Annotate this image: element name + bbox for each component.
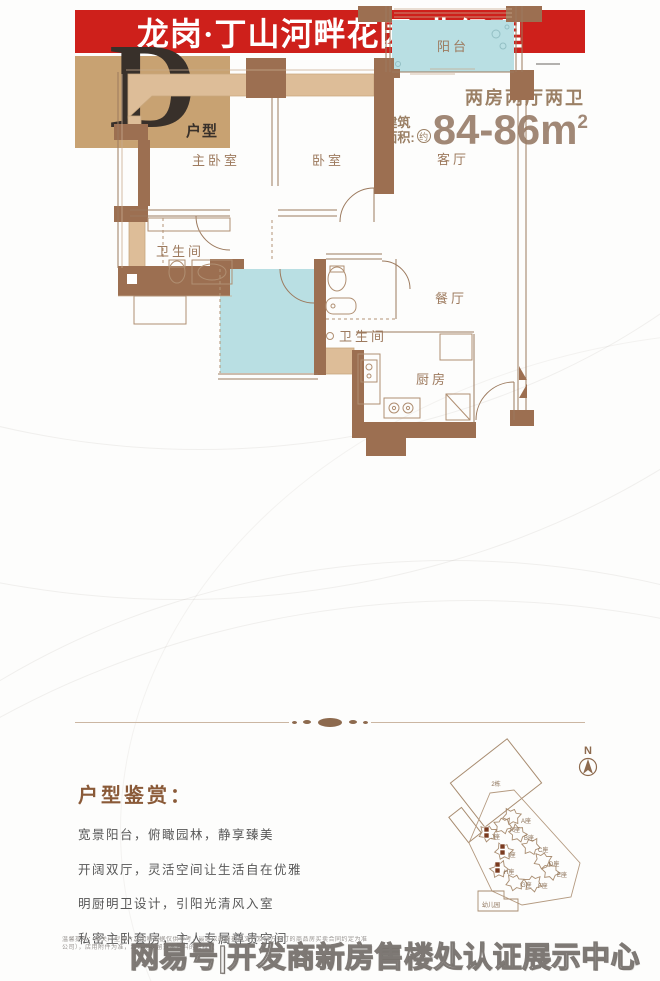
room-label-living-room: 客厅 xyxy=(437,152,469,167)
building-label-kindergarten: 幼儿园 xyxy=(482,901,500,909)
floor-plan: 阳台 主卧室 卧室 客厅 卫生间 卫生间 餐厅 厨房 xyxy=(0,0,660,470)
room-label-bathroom-1: 卫生间 xyxy=(156,244,204,259)
building-label-K: K座 xyxy=(510,826,520,834)
north-label: N xyxy=(584,745,592,757)
platform-watermark: 网易号|开发商新房售楼处认证展示中心 xyxy=(130,934,640,976)
room-label-master-bedroom: 主卧室 xyxy=(192,153,240,168)
feature-item: 开阔双厅，灵活空间让生活自在优雅 xyxy=(78,859,408,878)
room-label-dining-room: 餐厅 xyxy=(435,291,467,306)
room-label-bedroom: 卧室 xyxy=(312,153,344,168)
building-label-C: C座 xyxy=(538,846,548,854)
building-label-D: D座 xyxy=(549,860,559,868)
building-label-G: G座 xyxy=(521,881,532,889)
building-label-E: E座 xyxy=(557,871,567,879)
site-plan: N 2栋 xyxy=(420,733,655,943)
section-divider xyxy=(75,716,585,728)
features-heading: 户型鉴赏： xyxy=(78,779,408,808)
feature-item: 明厨明卫设计，引阳光清风入室 xyxy=(78,893,408,912)
poster-page: 龙岗·丁山河畔花园·裴经理 D 户型 两房两厅两卫 建筑 面积: 约 84-86… xyxy=(0,0,660,981)
building-label-B: B座 xyxy=(524,834,534,842)
building-label-I: I座 xyxy=(508,851,516,859)
compass-needle xyxy=(583,759,593,774)
feature-item: 宽景阳台，俯瞰园林，静享臻美 xyxy=(78,824,408,843)
divider-ornament xyxy=(318,718,342,727)
wall-inset-square xyxy=(127,274,137,284)
patio-area xyxy=(220,269,314,373)
room-label-kitchen: 厨房 xyxy=(416,372,448,387)
building-label-J: J座 xyxy=(491,833,500,841)
building-label-F: F座 xyxy=(538,882,548,890)
building-label-A: A座 xyxy=(521,817,531,825)
room-label-bathroom-2: 卫生间 xyxy=(339,329,387,344)
building-label-2: 2栋 xyxy=(491,780,500,788)
building-label-H: H座 xyxy=(504,868,514,876)
room-label-balcony: 阳台 xyxy=(437,39,469,54)
